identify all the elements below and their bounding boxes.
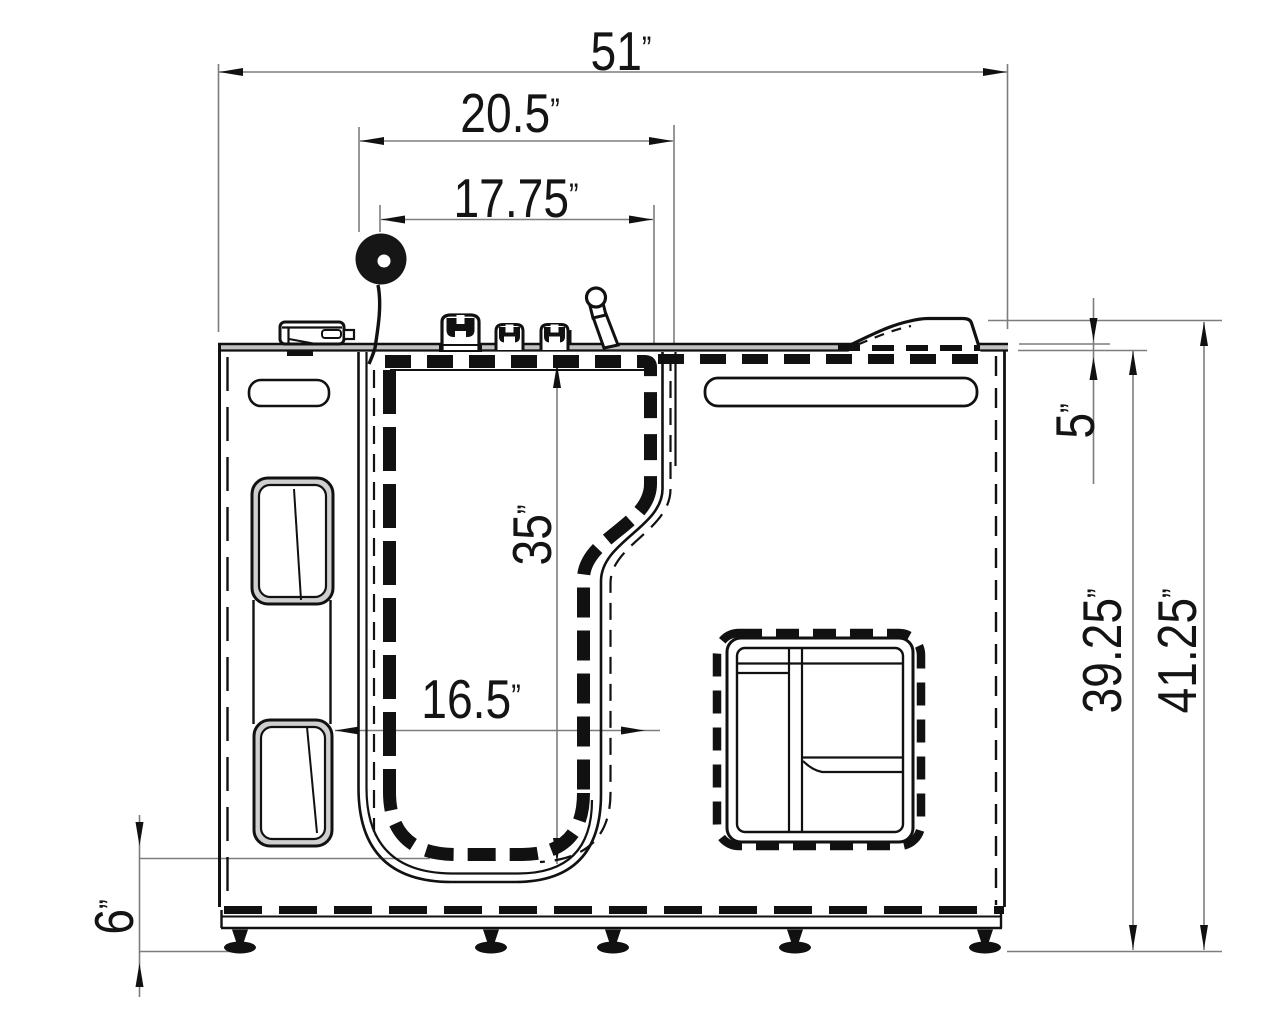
svg-text:17.75”: 17.75”: [453, 167, 578, 229]
svg-text:16.5”: 16.5”: [421, 668, 520, 730]
svg-text:39.25”: 39.25”: [1071, 588, 1133, 713]
svg-text:41.25”: 41.25”: [1146, 588, 1208, 713]
svg-text:20.5”: 20.5”: [460, 82, 559, 144]
